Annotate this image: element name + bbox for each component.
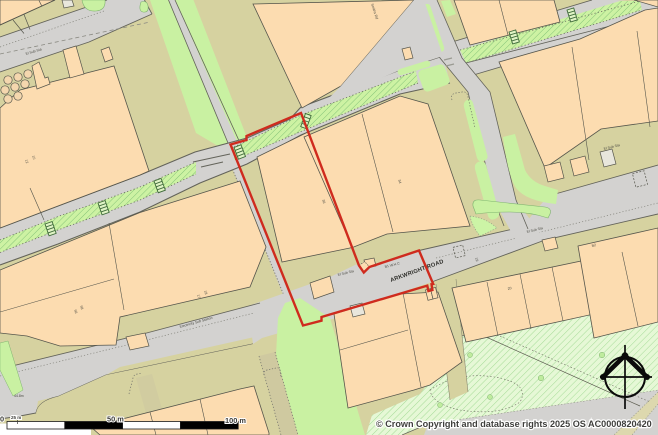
svg-text:0: 0 [0, 415, 4, 424]
svg-text:25 m: 25 m [11, 415, 21, 420]
svg-text:44.8m: 44.8m [14, 394, 24, 398]
svg-text:50 m: 50 m [107, 415, 124, 424]
svg-text:© Crown Copyright and database: © Crown Copyright and database rights 20… [376, 419, 652, 429]
svg-text:100 m: 100 m [225, 416, 246, 425]
